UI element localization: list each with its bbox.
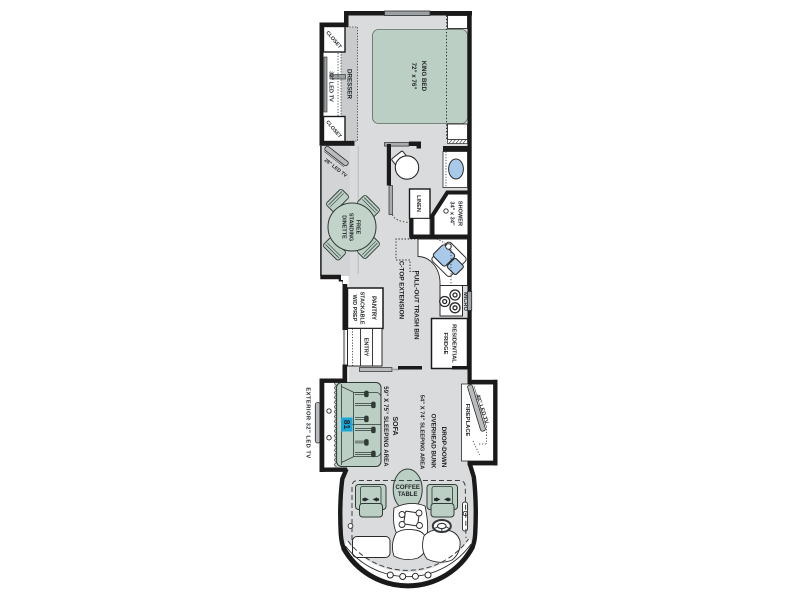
svg-text:DINETTE: DINETTE [341, 215, 347, 239]
svg-text:STANDING: STANDING [348, 213, 354, 241]
svg-text:34” x 34”: 34” x 34” [449, 201, 455, 225]
svg-text:KING BED: KING BED [420, 61, 427, 92]
svg-text:81: 81 [342, 420, 352, 430]
svg-text:54” X 74” SLEEPING AREA: 54” X 74” SLEEPING AREA [419, 395, 425, 470]
svg-text:59” X 75” SLEEPING AREA: 59” X 75” SLEEPING AREA [382, 386, 388, 467]
svg-text:C-TOP EXTENSION: C-TOP EXTENSION [397, 261, 404, 320]
svg-text:72” x 76”: 72” x 76” [410, 63, 417, 90]
svg-text:PULL-OUT TRASH BIN: PULL-OUT TRASH BIN [412, 271, 419, 340]
svg-text:OVERHEAD BUNK: OVERHEAD BUNK [429, 414, 436, 469]
svg-text:TABLE: TABLE [398, 492, 418, 498]
svg-text:LINEN: LINEN [415, 195, 421, 212]
svg-text:STACKABLE: STACKABLE [359, 292, 365, 325]
svg-text:W/D PREP: W/D PREP [351, 295, 357, 322]
svg-text:RESIDENTIAL: RESIDENTIAL [451, 324, 457, 363]
svg-text:EXTERIOR 32” LED TV: EXTERIOR 32” LED TV [305, 387, 311, 458]
svg-text:DRESSER: DRESSER [345, 69, 352, 99]
svg-text:FREE: FREE [355, 220, 361, 235]
svg-text:SOFA: SOFA [391, 416, 398, 435]
svg-text:PANTRY: PANTRY [370, 296, 376, 320]
svg-text:32” LED TV: 32” LED TV [328, 71, 334, 102]
svg-text:COFFEE: COFFEE [396, 485, 420, 491]
svg-text:SHOWER: SHOWER [457, 201, 463, 226]
svg-text:DROP-DOWN: DROP-DOWN [440, 427, 447, 468]
svg-text:FIREPLACE: FIREPLACE [464, 404, 470, 437]
svg-text:FRIDGE: FRIDGE [442, 333, 448, 355]
svg-text:ENTRY: ENTRY [363, 338, 369, 357]
